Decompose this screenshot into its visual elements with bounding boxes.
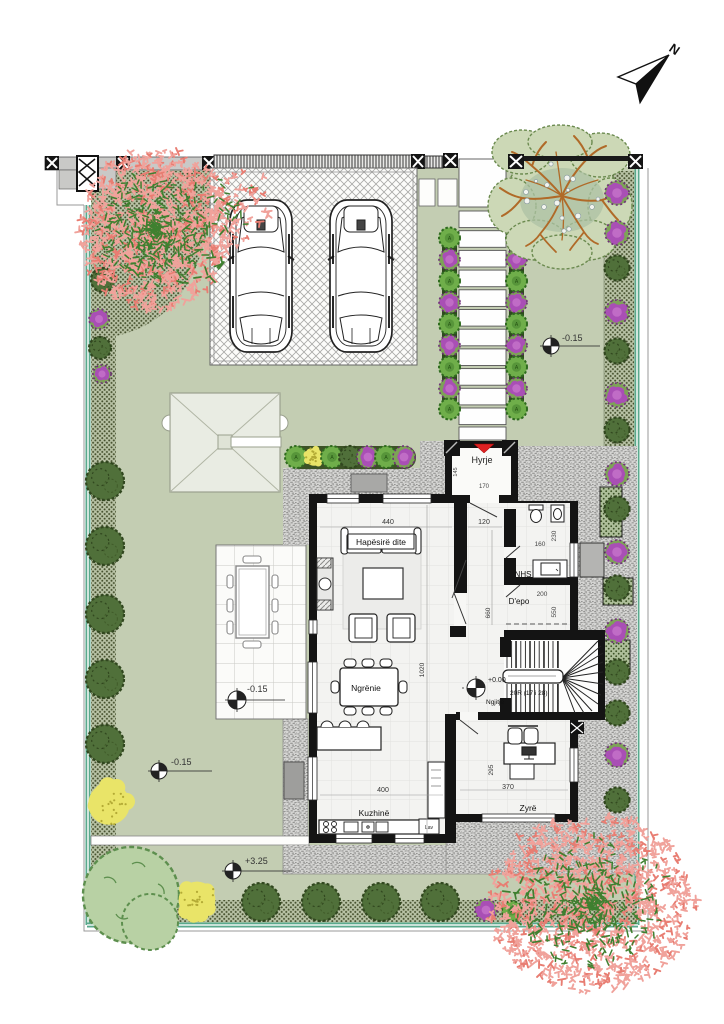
svg-text:Zyrë: Zyrë [520,803,537,813]
svg-text:660: 660 [485,607,492,618]
svg-text:200: 200 [537,591,548,598]
svg-text:160: 160 [535,541,546,548]
svg-text:550: 550 [551,606,558,617]
svg-text:-0.15: -0.15 [247,684,268,694]
svg-text:1020: 1020 [419,662,426,677]
svg-text:440: 440 [382,519,394,526]
svg-text:+0.00: +0.00 [488,677,506,684]
svg-text:-0.15: -0.15 [171,757,192,767]
svg-text:145: 145 [453,467,459,476]
svg-text:400: 400 [377,787,389,794]
svg-text:120: 120 [478,519,490,526]
svg-text:+3.25: +3.25 [245,856,268,866]
svg-text:Ngrënie: Ngrënie [351,683,381,693]
svg-text:Hyrje: Hyrje [471,455,492,465]
svg-text:170: 170 [479,484,490,490]
svg-text:20R (17 i 28): 20R (17 i 28) [510,690,548,697]
svg-text:D'epo: D'epo [509,597,530,606]
svg-text:Kuzhinë: Kuzhinë [359,808,390,818]
svg-text:-0.15: -0.15 [562,333,583,343]
svg-text:230: 230 [551,530,558,541]
svg-text:Hapësirë dite: Hapësirë dite [356,537,406,547]
svg-text:370: 370 [502,784,514,791]
svg-text:NHS: NHS [515,570,532,579]
svg-text:Ngjitje: Ngjitje [486,699,504,706]
svg-text:295: 295 [488,764,495,775]
svg-text:Lav: Lav [425,825,434,831]
